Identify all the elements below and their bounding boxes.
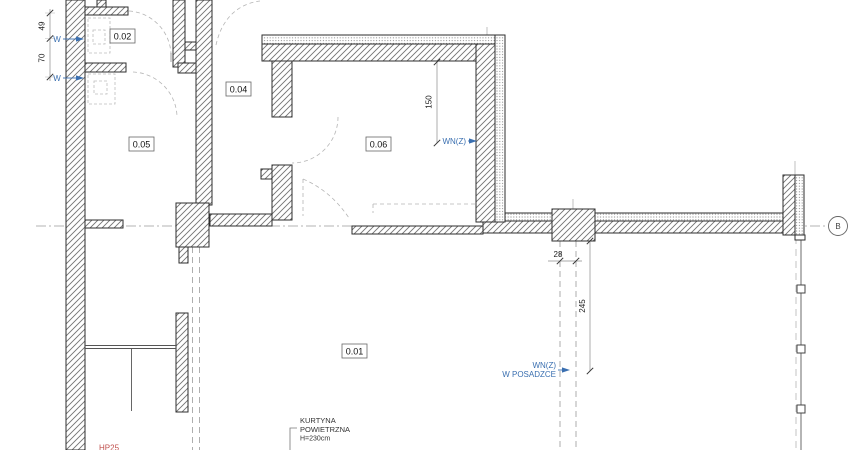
room-label-0-02-text: 0.02 xyxy=(114,32,132,42)
fixture-washbasin-1 xyxy=(88,18,110,53)
grid-bubble-letter: B xyxy=(835,222,840,231)
dim-28: 28 xyxy=(548,250,582,264)
fixture-washbasin-2 xyxy=(88,74,115,104)
w-marker-2-label: W xyxy=(53,74,61,83)
fixture-washbasin-1-inner xyxy=(93,30,105,44)
wall-0-04-east-lower xyxy=(272,165,292,220)
wall-0-06-north-insulation xyxy=(262,35,503,44)
dim-28-label: 28 xyxy=(554,250,563,259)
room-label-0-04-text: 0.04 xyxy=(230,85,248,95)
storefront-line xyxy=(796,237,805,450)
wnz-floor-label-2: W POSADZCE xyxy=(502,370,556,379)
dim-150-label: 150 xyxy=(425,95,434,109)
room-label-0-01: 0.01 xyxy=(342,344,367,358)
hp25-note: HP25 xyxy=(99,444,120,450)
wall-top-pier xyxy=(97,0,106,7)
wall-right-stub-insulation xyxy=(795,175,804,235)
shaft-south-wall xyxy=(178,63,198,73)
room-label-0-06: 0.06 xyxy=(366,137,391,151)
wall-0-04-east-stub xyxy=(261,169,272,179)
dim-245-label: 245 xyxy=(578,299,587,313)
air-curtain-note: KURTYNA POWIETRZNA H=230cm xyxy=(290,416,350,450)
mullion-marker-1 xyxy=(797,285,805,293)
lower-left-lines xyxy=(85,346,176,412)
wall-right-stub-foot xyxy=(795,235,805,240)
wall-0-06-south xyxy=(352,226,483,234)
dim-49-label: 49 xyxy=(38,21,47,30)
walls xyxy=(66,0,805,450)
w-marker-1-label: W xyxy=(53,35,61,44)
wall-0-04-west xyxy=(196,0,212,205)
air-curtain-leader xyxy=(290,428,297,450)
shaft-north-wall xyxy=(185,42,196,50)
wall-grid-b-mid-left xyxy=(210,214,272,226)
door-arc-0-04-top xyxy=(216,1,260,45)
pilaster-grid-b xyxy=(552,209,595,241)
wnz-label: WN(Z) xyxy=(442,137,466,146)
mullion-marker-3 xyxy=(797,405,805,413)
partition-0-02-south xyxy=(85,63,126,72)
door-arc-0-04-east xyxy=(292,117,338,163)
partition-corridor-east xyxy=(173,0,185,67)
wall-0-06-east-insulation xyxy=(495,35,505,222)
air-curtain-line2: POWIETRZNA xyxy=(300,425,350,434)
room-label-0-05-text: 0.05 xyxy=(133,140,151,150)
dim-150: 150 xyxy=(425,59,441,146)
room-label-0-02: 0.02 xyxy=(110,29,135,43)
room-label-0-01-text: 0.01 xyxy=(346,347,364,357)
door-arc-0-05 xyxy=(133,72,177,116)
wall-0-06-east xyxy=(476,44,495,222)
room-label-0-04: 0.04 xyxy=(226,82,251,96)
dim-70-label: 70 xyxy=(38,53,47,62)
stub-grid-b-left xyxy=(85,220,123,228)
grid-bubble-b: B xyxy=(829,217,848,236)
dim-chain-left: 49 70 xyxy=(38,9,56,81)
wnz-marker: WN(Z) xyxy=(442,137,477,146)
mullion-marker-2 xyxy=(797,345,805,353)
wall-0-06-north xyxy=(262,44,495,61)
air-curtain-line1: KURTYNA xyxy=(300,416,336,425)
dim-245: 245 xyxy=(578,238,593,374)
wnz-floor-arrow xyxy=(562,367,570,372)
duct-lines xyxy=(193,241,577,450)
floor-plan-canvas: 49 70 150 28 245 W xyxy=(0,0,850,450)
room-label-0-05: 0.05 xyxy=(129,137,154,151)
door-arc-0-06 xyxy=(303,179,349,218)
partition-0-02-north xyxy=(85,7,128,15)
room-label-0-06-text: 0.06 xyxy=(370,140,388,150)
hp25-label: HP25 xyxy=(99,444,120,450)
air-curtain-line3: H=230cm xyxy=(300,436,330,443)
wall-right-stub xyxy=(783,175,795,235)
pilaster-left xyxy=(176,203,209,247)
floor-plan-screenshot: 49 70 150 28 245 W xyxy=(0,0,850,450)
wall-grid-b xyxy=(483,221,800,233)
wall-0-04-east-upper xyxy=(272,61,292,117)
wnz-floor-label-1: WN(Z) xyxy=(532,361,556,370)
wall-left-exterior xyxy=(66,0,85,450)
fixture-washbasin-2-inner xyxy=(94,81,107,94)
wall-lower-left-strip xyxy=(176,313,188,412)
wall-grid-b-insulation xyxy=(483,213,800,221)
stub-below-pilaster xyxy=(179,247,188,263)
room-labels: 0.02 0.04 0.05 0.06 0.01 xyxy=(110,29,391,358)
